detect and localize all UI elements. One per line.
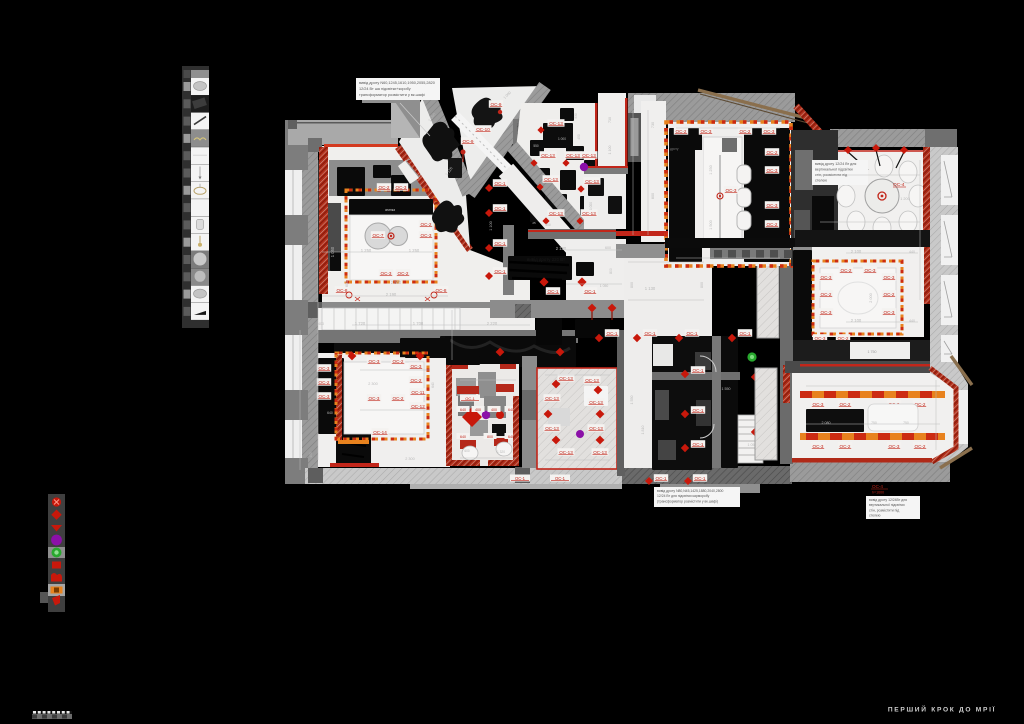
svg-text:вивід дроту N60,1245,1610,1950: вивід дроту N60,1245,1610,1950,2055,2820 bbox=[359, 81, 435, 85]
svg-text:ОС-2: ОС-2 bbox=[676, 129, 687, 134]
svg-text:ОС-4: ОС-4 bbox=[872, 484, 883, 489]
svg-text:ОС-13: ОС-13 bbox=[566, 153, 580, 158]
svg-text:ОС-3: ОС-3 bbox=[369, 396, 380, 401]
svg-text:800: 800 bbox=[630, 282, 634, 288]
svg-text:1 100: 1 100 bbox=[489, 221, 493, 231]
svg-text:12/24 Вт ша підсвітки+коробу: 12/24 Вт ша підсвітки+коробу bbox=[359, 87, 411, 91]
svg-text:ОС-2: ОС-2 bbox=[767, 222, 778, 227]
svg-text:ОС-1: ОС-1 bbox=[687, 331, 698, 336]
svg-text:1 810: 1 810 bbox=[641, 426, 645, 435]
svg-text:ОС-3: ОС-3 bbox=[764, 129, 775, 134]
svg-text:1 500: 1 500 bbox=[709, 220, 713, 230]
svg-text:ОС-3: ОС-3 bbox=[701, 129, 712, 134]
svg-text:ОС-3: ОС-3 bbox=[884, 275, 895, 280]
svg-text:ОС-3: ОС-3 bbox=[813, 444, 824, 449]
svg-text:ОС-3: ОС-3 bbox=[421, 233, 432, 238]
svg-text:ОС-2: ОС-2 bbox=[398, 271, 409, 276]
svg-text:ОС-3: ОС-3 bbox=[767, 168, 778, 173]
svg-text:стелею: стелею bbox=[815, 179, 827, 183]
svg-text:1 000: 1 000 bbox=[558, 137, 566, 141]
svg-text:12/24 Вт для підсвітки карморо: 12/24 Вт для підсвітки карморобу bbox=[657, 494, 710, 498]
svg-text:ОС-9: ОС-9 bbox=[463, 139, 474, 144]
svg-text:1 550: 1 550 bbox=[722, 387, 731, 391]
svg-text:400: 400 bbox=[475, 408, 481, 412]
svg-text:ОС-13: ОС-13 bbox=[545, 426, 559, 431]
svg-text:ОС-13: ОС-13 bbox=[559, 450, 573, 455]
svg-text:ОС-1: ОС-1 bbox=[495, 241, 506, 246]
svg-text:ОС-1: ОС-1 bbox=[465, 396, 475, 401]
svg-text:ОС-13: ОС-13 bbox=[589, 426, 603, 431]
svg-text:2 300: 2 300 bbox=[368, 382, 378, 386]
svg-text:ОС-3: ОС-3 bbox=[821, 310, 832, 315]
svg-text:ОС-13: ОС-13 bbox=[585, 179, 599, 184]
svg-text:ОС-13: ОС-13 bbox=[589, 400, 603, 405]
svg-text:ОС-2: ОС-2 bbox=[421, 222, 432, 227]
svg-text:ОС-3: ОС-3 bbox=[865, 268, 876, 273]
svg-text:ОС-2: ОС-2 bbox=[915, 444, 926, 449]
svg-text:ОС-13: ОС-13 bbox=[549, 211, 563, 216]
svg-text:(трансформатор розмістити у вк: (трансформатор розмістити у вк.шафі) bbox=[657, 499, 718, 503]
svg-text:ОС-1: ОС-1 bbox=[656, 476, 667, 481]
svg-text:730: 730 bbox=[608, 117, 612, 123]
svg-text:ОС-1: ОС-1 bbox=[693, 408, 704, 413]
svg-text:930: 930 bbox=[574, 113, 578, 119]
svg-text:вивід дроту 12/24Вт для: вивід дроту 12/24Вт для bbox=[869, 498, 907, 502]
svg-text:640: 640 bbox=[431, 382, 435, 388]
svg-text:550: 550 bbox=[533, 144, 539, 148]
svg-text:стін, розмістити під: стін, розмістити під bbox=[869, 508, 899, 512]
svg-text:ОС-13: ОС-13 bbox=[559, 376, 573, 381]
svg-text:440: 440 bbox=[909, 319, 915, 323]
svg-text:ОС-3: ОС-3 bbox=[821, 275, 832, 280]
svg-text:ОС-1: ОС-1 bbox=[548, 289, 559, 294]
svg-text:1 130: 1 130 bbox=[645, 286, 656, 291]
svg-text:600: 600 bbox=[464, 449, 470, 453]
svg-text:750: 750 bbox=[903, 421, 909, 425]
svg-text:ОС-11: ОС-11 bbox=[411, 390, 425, 395]
svg-text:ОС-2: ОС-2 bbox=[840, 444, 851, 449]
svg-text:ОС-3: ОС-3 bbox=[396, 185, 407, 190]
svg-text:ОС-1: ОС-1 bbox=[495, 206, 506, 211]
svg-text:2 130: 2 130 bbox=[556, 246, 567, 251]
svg-text:ОС-13: ОС-13 bbox=[545, 396, 559, 401]
svg-text:25: 25 bbox=[532, 221, 536, 225]
svg-text:ОС-2: ОС-2 bbox=[821, 292, 832, 297]
svg-text:спинка: спинка bbox=[385, 208, 395, 212]
svg-text:ОС-13: ОС-13 bbox=[549, 121, 563, 126]
svg-text:ОС-2: ОС-2 bbox=[379, 185, 390, 190]
svg-text:ОС-2: ОС-2 bbox=[767, 150, 778, 155]
svg-text:ОС-3: ОС-3 bbox=[411, 364, 422, 369]
svg-text:ОС-1: ОС-1 bbox=[645, 331, 656, 336]
svg-text:стелею: стелею bbox=[869, 514, 881, 518]
svg-text:800: 800 bbox=[700, 282, 704, 288]
svg-text:ОС-3: ОС-3 bbox=[889, 444, 900, 449]
svg-text:ОС-13: ОС-13 bbox=[541, 153, 555, 158]
svg-text:ОС-1: ОС-1 bbox=[555, 476, 566, 481]
svg-text:1 050: 1 050 bbox=[330, 246, 335, 257]
svg-text:ОС-2: ОС-2 bbox=[841, 268, 852, 273]
svg-text:ОС-1: ОС-1 bbox=[740, 331, 751, 336]
svg-text:ОС-9: ОС-9 bbox=[491, 102, 502, 107]
svg-text:дроту: дроту bbox=[670, 147, 679, 151]
svg-text:h=1600: h=1600 bbox=[872, 491, 884, 495]
svg-text:ОС-3: ОС-3 bbox=[319, 394, 330, 399]
svg-text:2 080: 2 080 bbox=[822, 421, 831, 425]
svg-text:ОС-1: ОС-1 bbox=[693, 442, 704, 447]
svg-text:ОС-3: ОС-3 bbox=[884, 310, 895, 315]
svg-text:450: 450 bbox=[309, 452, 313, 458]
svg-text:800: 800 bbox=[609, 268, 613, 274]
svg-text:800: 800 bbox=[487, 435, 493, 439]
svg-text:ОС-13: ОС-13 bbox=[585, 378, 599, 383]
svg-text:1 050: 1 050 bbox=[600, 284, 609, 288]
svg-text:450: 450 bbox=[577, 134, 581, 140]
svg-text:ОС-13: ОС-13 bbox=[593, 450, 607, 455]
svg-text:1 200: 1 200 bbox=[900, 197, 910, 201]
svg-text:ОС-3: ОС-3 bbox=[319, 366, 330, 371]
svg-text:ОС-2: ОС-2 bbox=[740, 129, 751, 134]
svg-text:вивід дроту 220 Вт: вивід дроту 220 Вт bbox=[527, 257, 565, 262]
svg-text:ОС-12: ОС-12 bbox=[411, 404, 425, 409]
svg-text:ОС-1: ОС-1 bbox=[515, 476, 526, 481]
svg-text:750: 750 bbox=[871, 421, 877, 425]
svg-text:2 000: 2 000 bbox=[869, 293, 873, 303]
svg-text:1 000: 1 000 bbox=[589, 202, 593, 210]
svg-text:ОС-3: ОС-3 bbox=[813, 402, 824, 407]
svg-text:1 550: 1 550 bbox=[630, 396, 634, 405]
svg-text:ОС-13: ОС-13 bbox=[582, 153, 596, 158]
svg-text:640: 640 bbox=[460, 408, 466, 412]
svg-text:ОС-13: ОС-13 bbox=[544, 177, 558, 182]
svg-text:ОС-3: ОС-3 bbox=[767, 203, 778, 208]
svg-text:2 300: 2 300 bbox=[405, 457, 415, 461]
svg-text:ОС-7: ОС-7 bbox=[373, 233, 384, 238]
svg-text:1 320: 1 320 bbox=[497, 450, 505, 454]
svg-text:вертикальної підсвітки: вертикальної підсвітки bbox=[869, 503, 905, 507]
svg-text:1 750: 1 750 bbox=[868, 350, 877, 354]
svg-text:730: 730 bbox=[651, 122, 655, 128]
svg-text:640: 640 bbox=[327, 411, 333, 415]
svg-text:ОС-2: ОС-2 bbox=[393, 396, 404, 401]
svg-text:ОС-8: ОС-8 bbox=[337, 288, 348, 293]
svg-text:ПЕРШИЙ КРОК ДО МРІЇ: ПЕРШИЙ КРОК ДО МРІЇ bbox=[888, 705, 996, 714]
svg-text:1 100: 1 100 bbox=[608, 146, 612, 155]
svg-text:вертикальної підсвітки: вертикальної підсвітки bbox=[815, 168, 853, 172]
svg-text:вивід дроту 12/24 Вт для: вивід дроту 12/24 Вт для bbox=[815, 162, 856, 166]
svg-text:ОС-14: ОС-14 bbox=[373, 430, 387, 435]
svg-text:ОС-8: ОС-8 bbox=[436, 288, 447, 293]
svg-text:ОС-1: ОС-1 bbox=[695, 476, 706, 481]
svg-text:2 900: 2 900 bbox=[391, 280, 402, 285]
svg-text:ОС-1: ОС-1 bbox=[585, 289, 596, 294]
svg-text:ОС-1: ОС-1 bbox=[495, 269, 506, 274]
svg-text:вивід дроту N80,N45,1425,1880,: вивід дроту N80,N45,1425,1880,2040,2800 bbox=[657, 489, 724, 493]
svg-text:ОС-13: ОС-13 bbox=[582, 211, 596, 216]
svg-text:ОС-2: ОС-2 bbox=[884, 292, 895, 297]
svg-text:ОС-2: ОС-2 bbox=[840, 402, 851, 407]
svg-text:ОС-10: ОС-10 bbox=[476, 127, 490, 132]
svg-text:500: 500 bbox=[545, 223, 551, 227]
svg-text:640: 640 bbox=[460, 435, 466, 439]
svg-text:ОС-3: ОС-3 bbox=[369, 359, 380, 364]
svg-text:ОС-2: ОС-2 bbox=[411, 378, 422, 383]
svg-text:400: 400 bbox=[318, 322, 324, 326]
svg-text:ОС-1: ОС-1 bbox=[607, 331, 618, 336]
svg-text:800: 800 bbox=[651, 193, 655, 199]
svg-text:1 250: 1 250 bbox=[709, 165, 713, 175]
svg-text:ОС-2: ОС-2 bbox=[393, 359, 404, 364]
svg-text:ОС-2: ОС-2 bbox=[319, 380, 330, 385]
svg-text:ОС-3: ОС-3 bbox=[381, 271, 392, 276]
svg-text:ОС-1: ОС-1 bbox=[693, 368, 704, 373]
svg-text:трансформатор розмістити у вк.: трансформатор розмістити у вк.шафі bbox=[359, 93, 425, 97]
svg-text:600: 600 bbox=[345, 281, 349, 287]
svg-text:400: 400 bbox=[491, 408, 497, 412]
svg-text:ОС-1: ОС-1 bbox=[495, 181, 506, 186]
svg-text:ОС-3: ОС-3 bbox=[726, 188, 737, 193]
svg-text:440: 440 bbox=[909, 250, 915, 254]
svg-text:600: 600 bbox=[605, 246, 611, 250]
